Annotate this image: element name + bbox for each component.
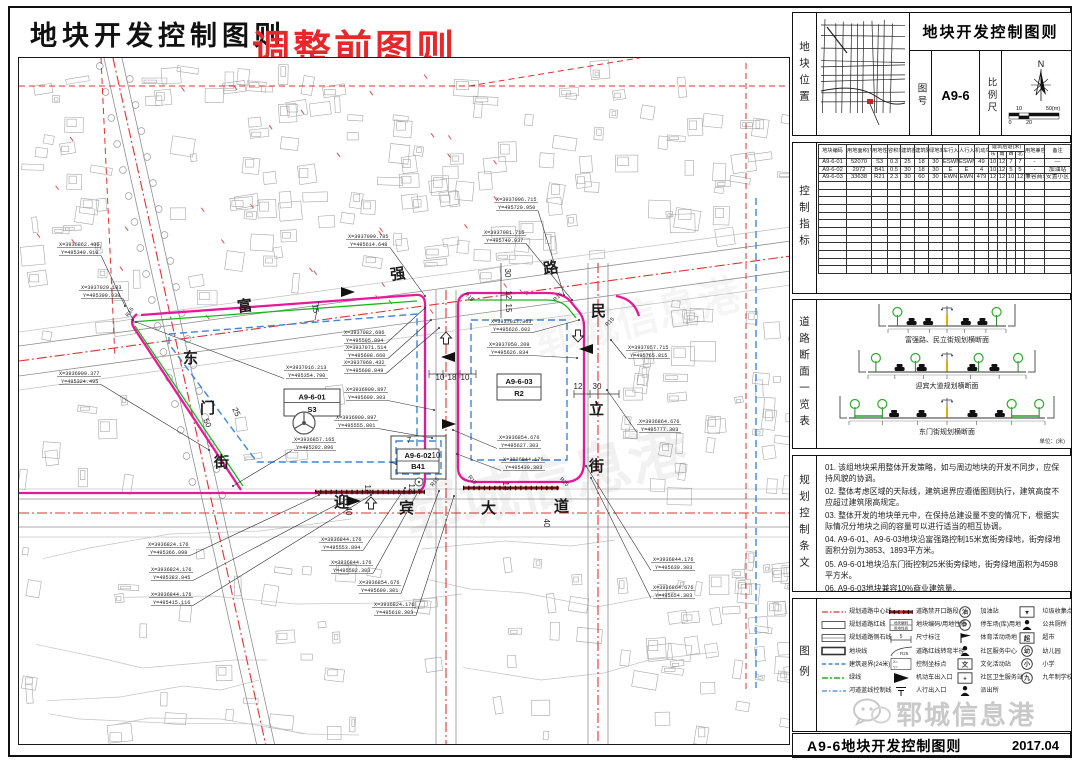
empty-row: [819, 181, 1071, 189]
legend-item-label: 九年制学校: [1042, 672, 1071, 681]
footer-date: 2017.04: [1012, 738, 1059, 753]
svg-text:X=3937082.686: X=3937082.686: [344, 330, 384, 336]
footer-title: A9-6地块开发控制图则: [807, 736, 961, 756]
svg-text:X=3936900.897: X=3936900.897: [336, 415, 376, 421]
legend-item-label: 垃圾收集点: [1042, 606, 1071, 615]
legend-symbol-circleglyph: P: [952, 618, 978, 630]
svg-text:Y=495292.896: Y=495292.896: [296, 445, 333, 451]
legend-symbol-redline: [821, 618, 847, 630]
legend-symbol-turnradius: R25: [888, 644, 914, 656]
svg-text:Y=495349.910: Y=495349.910: [61, 250, 98, 256]
svg-text:5: 5: [900, 634, 903, 640]
legend-symbol-parcelline: [821, 644, 847, 656]
svg-text:文: 文: [962, 660, 969, 669]
svg-text:Y=495415.116: Y=495415.116: [153, 600, 190, 606]
svg-text:X=3936824.176: X=3936824.176: [148, 542, 188, 548]
svg-text:X=3936854.676: X=3936854.676: [359, 580, 399, 586]
svg-text:X=3936857.165: X=3936857.165: [294, 437, 334, 443]
svg-text:R2: R2: [514, 389, 524, 398]
page-title: 地块开发控制图则: [30, 14, 286, 53]
svg-text:X=3936824.176: X=3936824.176: [151, 567, 191, 573]
provisions-text: 01. 该组地块采用整体开发策略，如与周边地块的开发不同步，应保持风貌的协调。0…: [817, 456, 1071, 591]
site-marker: [867, 99, 873, 104]
provisions-panel: 规划控制条文 01. 该组地块采用整体开发策略，如与周边地块的开发不同步，应保持…: [792, 455, 1072, 592]
block-title: 地块开发控制图则: [910, 13, 1071, 51]
svg-text:立: 立: [589, 400, 604, 418]
col-header: 绿地率(%): [929, 145, 943, 159]
svg-text:Y=495765.815: Y=495765.815: [630, 353, 667, 359]
col-header: 机动车位(个): [975, 145, 989, 159]
cross-section-caption: 迎宾大道规划横断面: [916, 381, 979, 390]
legend-item: 油加油站: [952, 604, 1014, 617]
empty-row: [819, 266, 1071, 274]
svg-text:Y=495608.660: Y=495608.660: [348, 353, 385, 359]
svg-text:X=3937016.213: X=3937016.213: [286, 365, 326, 371]
legend-item-label: 文化活动站: [980, 659, 1010, 668]
svg-text:X=3936824.176: X=3936824.176: [374, 602, 414, 608]
legend-item-label: 人行出入口: [916, 685, 946, 694]
svg-text:Y=495654.303: Y=495654.303: [655, 593, 692, 599]
legend-item-label: 尺寸标注: [916, 632, 940, 641]
svg-text:Y=495626.602: Y=495626.602: [493, 327, 530, 333]
svg-text:X=3936844.176: X=3936844.176: [653, 557, 693, 563]
provision-item: 05. A9-6-01地块沿东门街控制25米街旁绿地，街旁绿地面积为4598平方…: [825, 559, 1063, 581]
cross-section-caption: 富强路、民立街规划横断面: [905, 335, 989, 344]
unit-note: 单位：(米): [1039, 437, 1065, 445]
col-header: 人行入口方向: [959, 145, 975, 159]
legend-item-label: 小学: [1042, 659, 1054, 668]
legend-item: ▼垃圾收集点: [1014, 604, 1069, 617]
legend-item-label: 规划道路中心线: [849, 606, 892, 615]
svg-text:15: 15: [310, 303, 321, 314]
cross-section: 东门街规划横断面: [840, 396, 1054, 436]
col-header: 建筑后退(米): [989, 145, 1025, 152]
legend-item: 文文化活动站: [952, 657, 1014, 670]
empty-row: [819, 243, 1071, 251]
legend-symbol-coordpoint: X=Y=: [888, 657, 914, 669]
legend-symbol-circleglyph: 幼: [1014, 644, 1040, 656]
svg-text:X=3936844.176: X=3936844.176: [331, 560, 371, 566]
svg-text:20: 20: [1025, 120, 1031, 126]
col-header: 车行入口方向: [943, 145, 959, 159]
svg-text:X=3937096.715: X=3937096.715: [496, 197, 536, 203]
legend-symbol-boxglyph: +: [952, 671, 978, 683]
svg-text:Y=495383.945: Y=495383.945: [153, 575, 190, 581]
legend-item-label: 派出所: [980, 685, 998, 694]
legend-item: P停车场(库)用地: [952, 617, 1014, 630]
legend-item-label: 控制坐标点: [916, 659, 946, 668]
planning-map: A9-6-01S3A9-6-02B41A9-6-03R2富强路东门街民立街迎宾大…: [19, 58, 790, 745]
legend-item: 5尺寸标注: [888, 630, 952, 643]
legend-symbol-boxglyph: 文: [952, 657, 978, 669]
svg-text:Y=495553.894: Y=495553.894: [323, 545, 360, 551]
indicators-label: 控制指标: [793, 143, 817, 293]
legend-item: 机动车出入口: [888, 670, 952, 683]
provision-item: 01. 该组地块采用整体开发策略，如与周边地块的开发不同步，应保持风貌的协调。: [825, 462, 1063, 484]
legend-item-label: 超市: [1042, 632, 1054, 641]
parcel-data-row: A9-6-022972B410.5301830EE4101255-加油站: [819, 166, 1071, 174]
col-header: 建筑密度(%): [901, 145, 915, 159]
watermark-text: 郓城信息港: [896, 695, 1036, 732]
col-header: 用地性质: [872, 145, 888, 159]
map-panel: A9-6-01S3A9-6-02B41A9-6-03R2富强路东门街民立街迎宾大…: [18, 57, 790, 745]
street-trees: [96, 63, 225, 499]
legend-item: 小小学: [1014, 657, 1069, 670]
setback-sub-header: 北: [1016, 152, 1025, 159]
col-header: 用地兼容: [1025, 145, 1045, 159]
legend-symbol-circleglyph: 九: [1014, 671, 1040, 683]
legend-symbol-person: [1014, 618, 1040, 630]
svg-text:R25: R25: [900, 651, 909, 656]
legend-item-label: 幼儿园: [1042, 646, 1060, 655]
legend-symbol-boxglyph: ▼: [1014, 605, 1040, 617]
cadastral-buildings: [19, 60, 790, 745]
north-label: N: [1037, 59, 1044, 69]
svg-text:X=3936862.406: X=3936862.406: [59, 242, 99, 248]
provision-item: 06. A9-6-03地块兼容10%商业建筑量。: [825, 583, 1063, 591]
svg-text:12: 12: [574, 382, 583, 391]
svg-text:街: 街: [213, 453, 229, 471]
svg-text:10: 10: [432, 451, 441, 460]
svg-text:幼: 幼: [1024, 647, 1030, 655]
legend-symbol-greenline: [821, 671, 847, 683]
sheet-no-label: 图号: [910, 51, 932, 135]
cross-section: 富强路、民立街规划横断面: [879, 304, 1015, 344]
legend-item: 公共厕所: [1014, 617, 1069, 630]
svg-text:地块编码: 地块编码: [894, 620, 909, 625]
svg-text:X=3937081.715: X=3937081.715: [484, 230, 524, 236]
legend-item: 道路禁开口路段: [888, 604, 952, 617]
svg-text:强: 强: [389, 265, 406, 284]
empty-row: [819, 197, 1071, 205]
svg-text:X=3937057.715: X=3937057.715: [628, 345, 668, 351]
legend-item-label: 河道蓝线控制线: [849, 685, 892, 694]
indicators-table: 地块编码用地面积(平方米)用地性质容积率建筑密度(%)建筑限高(米)绿地率(%)…: [818, 144, 1071, 274]
svg-text:7: 7: [389, 461, 398, 466]
indicators-section: 控制指标 地块编码用地面积(平方米)用地性质容积率建筑密度(%)建筑限高(米)绿…: [792, 142, 1072, 294]
svg-text:A9-6-02: A9-6-02: [404, 451, 431, 460]
scale-bar: 1050(m)020: [1008, 106, 1060, 126]
legend-label: 图例: [793, 599, 817, 731]
svg-text:X=3936999.377: X=3936999.377: [59, 371, 99, 377]
plan-sheet: 地块开发控制图则 调整前图则 A9-6-01S3A9-6-02B41A9-6-0…: [0, 0, 1080, 763]
title-block: 地块位置 地块开发控制图则 图号 A9-6 比例尺 N1050(m)020: [792, 12, 1072, 136]
svg-text:Y=495639.303: Y=495639.303: [655, 565, 692, 571]
setback-sub-header: 东: [989, 152, 998, 159]
svg-text:10: 10: [461, 373, 470, 382]
empty-row: [819, 204, 1071, 212]
svg-text:郓城信息港: 郓城信息港: [396, 417, 694, 550]
svg-text:40: 40: [344, 507, 353, 516]
svg-text:Y=495614.648: Y=495614.648: [350, 242, 387, 248]
road-sections-panel: 道路断面一览表 富强路、民立街规划横断面迎宾大道规划横断面东门街规划横断面 单位…: [792, 299, 1072, 449]
svg-text:X=: X=: [893, 660, 899, 664]
empty-row: [819, 235, 1071, 243]
svg-text:X=3937050.209: X=3937050.209: [489, 342, 529, 348]
legend-item-label: 加油站: [980, 606, 998, 615]
empty-row: [819, 189, 1071, 197]
legend-item: +社区卫生服务站: [952, 670, 1014, 683]
svg-text:Y=495749.937: Y=495749.937: [486, 238, 523, 244]
svg-text:Y=495627.303: Y=495627.303: [501, 443, 538, 449]
svg-text:X=3937068.432: X=3937068.432: [344, 360, 384, 366]
field-lines: [36, 519, 717, 735]
provision-item: 02. 整体考虑区域的天际线，建筑退界应遵循图则执行，建筑高度不应超过建筑限高规…: [825, 486, 1063, 508]
svg-text:小: 小: [1023, 661, 1030, 669]
legend-symbol-flag: [952, 631, 978, 643]
col-header: 建筑限高(米): [915, 145, 929, 159]
legend-item: 幼幼儿园: [1014, 644, 1069, 657]
svg-text:7: 7: [407, 436, 412, 445]
legend-symbol-codebox: 地块编码用地性质: [888, 618, 914, 630]
svg-text:X=3937071.514: X=3937071.514: [346, 345, 386, 351]
legend-item-label: 建筑退界(24米): [849, 659, 890, 668]
survey-ticks: [37, 75, 527, 320]
legend-symbol-dimnote: 5: [888, 631, 914, 643]
svg-text:Y=495354.790: Y=495354.790: [288, 373, 325, 379]
svg-text:Y=495595.894: Y=495595.894: [346, 338, 383, 344]
col-header: 地块编码: [819, 145, 847, 159]
minimap-streets: [821, 19, 905, 113]
sheet-no: A9-6: [932, 51, 980, 135]
svg-text:Y=495609.303: Y=495609.303: [348, 395, 385, 401]
svg-text:10: 10: [436, 373, 445, 382]
svg-text:X=3937029.103: X=3937029.103: [81, 285, 121, 291]
footer-bar: A9-6地块开发控制图则 2017.04: [792, 733, 1072, 758]
empty-row: [819, 220, 1071, 228]
svg-text:A9-6-03: A9-6-03: [505, 377, 532, 386]
site-watermark: 郓城信息港: [852, 694, 1072, 732]
legend-symbol-noopen: [888, 605, 914, 617]
svg-text:B41: B41: [411, 462, 425, 471]
parcel-data-row: A9-6-0333638R212.3306030EWNEWN4791212101…: [819, 174, 1071, 182]
svg-text:X=3937017.363: X=3937017.363: [491, 319, 531, 325]
legend-symbol-sidestone: [821, 631, 847, 643]
svg-text:+: +: [964, 675, 968, 682]
provision-item: 03. 整体开发的地块单元中，在保持总建设量不变的情况下，根据实际情况分地块之间…: [825, 510, 1063, 532]
legend-symbol-boxglyph: 超: [1014, 631, 1040, 643]
legend-item: X=Y=控制坐标点: [888, 657, 952, 670]
parcel-data-row: A9-6-0152070S30.3251830ESWNESWN49101277-…: [819, 159, 1071, 167]
legend-item: R25道路红线转弯半径: [888, 644, 952, 657]
svg-text:Y=495324.495: Y=495324.495: [61, 379, 98, 385]
svg-text:40: 40: [542, 519, 551, 528]
legend-item: 地块编码用地性质地块编码/用地性质: [888, 617, 952, 630]
svg-text:X=3936844.176: X=3936844.176: [321, 537, 361, 543]
svg-text:门: 门: [200, 399, 215, 417]
svg-text:Y=495609.301: Y=495609.301: [361, 588, 398, 594]
cross-section-caption: 东门街规划横断面: [919, 427, 975, 436]
svg-text:油: 油: [962, 608, 968, 616]
col-header: 备注: [1045, 145, 1071, 159]
svg-text:15: 15: [504, 304, 513, 313]
legend-symbol-circleglyph: 油: [952, 605, 978, 617]
setback-sub-header: 西: [1007, 152, 1016, 159]
svg-text:X=3936844.176: X=3936844.176: [151, 592, 191, 598]
svg-text:0: 0: [1008, 120, 1011, 126]
svg-text:东: 东: [183, 349, 198, 367]
road-cross-sections: 富强路、民立街规划横断面迎宾大道规划横断面东门街规划横断面: [817, 300, 1071, 447]
location-minimap: [817, 13, 910, 135]
legend-item: 社区服务中心: [952, 644, 1014, 657]
legend-item-label: 社区服务中心: [980, 646, 1017, 655]
legend-item: 九九年制学校: [1014, 670, 1069, 683]
svg-text:Y=495626.834: Y=495626.834: [491, 350, 528, 356]
location-label: 地块位置: [793, 13, 817, 135]
svg-text:Y=495366.098: Y=495366.098: [150, 550, 187, 556]
svg-text:Y=495592.303: Y=495592.303: [333, 568, 370, 574]
legend-symbol-riverline: [821, 684, 847, 696]
provisions-label: 规划控制条文: [793, 456, 817, 591]
north-scale-cell: N1050(m)020: [1002, 51, 1071, 135]
legend-symbol-cartri: [888, 671, 914, 683]
svg-text:富: 富: [236, 296, 253, 316]
legend-symbol-centerline: [821, 605, 847, 617]
svg-text:X=3936900.897: X=3936900.897: [346, 387, 386, 393]
svg-text:Y=495618.303: Y=495618.303: [376, 610, 413, 616]
chat-bubble-logo: [852, 697, 892, 729]
legend-item: 绿线: [821, 670, 888, 683]
svg-text:P: P: [963, 623, 967, 629]
provision-item: 04. A9-6-01、A9-6-03地块沿富强路控制15米宽街旁绿地，街旁绿地…: [825, 534, 1063, 556]
legend-item: 规划道路侧石线: [821, 630, 888, 643]
setback-sub-header: 南: [998, 152, 1007, 159]
legend-item-label: 绿线: [849, 672, 861, 681]
svg-text:Y=495399.038: Y=495399.038: [83, 293, 120, 299]
svg-text:12: 12: [504, 291, 513, 300]
legend-item: 建筑退界(24米): [821, 657, 888, 670]
legend-item-label: 规划道路侧石线: [849, 632, 892, 641]
legend-item-label: 地块线: [849, 646, 867, 655]
legend-symbol-circleglyph: 小: [1014, 657, 1040, 669]
empty-row: [819, 212, 1071, 220]
road-sections-label: 道路断面一览表: [793, 300, 817, 448]
empty-row: [819, 258, 1071, 266]
empty-row: [819, 250, 1071, 258]
legend-item-label: 公共厕所: [1042, 619, 1066, 628]
col-header: 用地面积(平方米): [847, 145, 872, 159]
svg-text:12: 12: [363, 485, 372, 494]
svg-text:A9-6-01: A9-6-01: [298, 393, 325, 402]
svg-text:超: 超: [1024, 633, 1031, 642]
scale-label: 比例尺: [980, 51, 1002, 135]
legend-item: 规划道路中心线: [821, 604, 888, 617]
legend-item: 体育活动场地: [952, 630, 1014, 643]
legend-item-label: 体育活动场地: [980, 632, 1017, 641]
legend-item: 规划道路红线: [821, 617, 888, 630]
svg-text:50(m): 50(m): [1045, 106, 1060, 112]
legend-item-label: 规划道路红线: [849, 619, 886, 628]
svg-text:30: 30: [593, 382, 602, 391]
cross-section: 迎宾大道规划横断面: [859, 350, 1035, 390]
legend-item-label: 机动车出入口: [916, 672, 953, 681]
svg-text:10: 10: [1015, 106, 1021, 112]
svg-text:Y=495729.950: Y=495729.950: [498, 205, 535, 211]
svg-text:30: 30: [503, 269, 512, 278]
legend-item: 地块线: [821, 644, 888, 657]
legend-symbol-setback: [821, 657, 847, 669]
empty-row: [819, 227, 1071, 235]
map-watermark: 郓城信息港郓城信息港: [396, 270, 745, 551]
svg-text:X=3936854.676: X=3936854.676: [499, 435, 539, 441]
svg-text:25: 25: [230, 406, 242, 418]
svg-text:Y=495555.801: Y=495555.801: [338, 423, 375, 429]
col-header: 容积率: [888, 145, 901, 159]
svg-text:九: 九: [1023, 674, 1030, 682]
legend-symbol-person: [952, 644, 978, 656]
svg-text:Y=495608.849: Y=495608.849: [346, 368, 383, 374]
svg-text:▼: ▼: [1024, 609, 1030, 616]
svg-text:X=3937099.785: X=3937099.785: [348, 234, 388, 240]
svg-text:X=3936864.676: X=3936864.676: [653, 585, 693, 591]
legend-item: 超超市: [1014, 630, 1069, 643]
svg-text:18: 18: [448, 373, 457, 382]
